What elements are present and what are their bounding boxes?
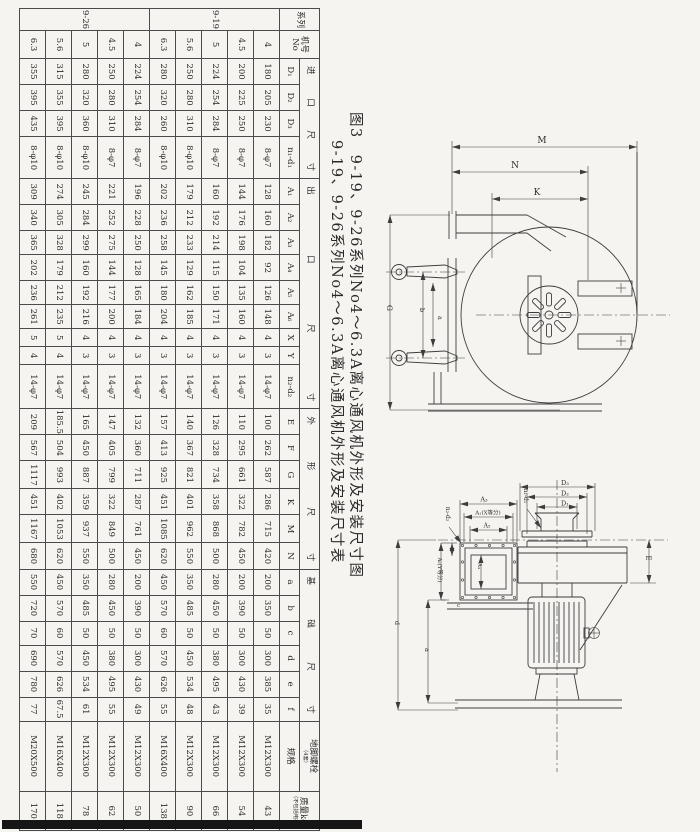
table-cell: 104 (228, 255, 254, 281)
table-cell: 50 (254, 621, 280, 645)
table-cell: 395 (20, 85, 46, 111)
column-group-header: 外形尺寸 (300, 409, 320, 569)
table-cell: 420 (254, 543, 280, 569)
table-cell: 570 (150, 595, 176, 621)
table-cell: 182 (254, 231, 280, 255)
table-cell: 8-φ7 (254, 137, 280, 179)
column-header: N (280, 543, 300, 569)
table-cell: 5 (20, 329, 46, 347)
table-cell: 4 (150, 329, 176, 347)
table-cell: 260 (150, 111, 176, 137)
table-cell: 1053 (46, 515, 72, 543)
table-cell: 4 (228, 329, 254, 347)
table-cell: 284 (124, 111, 150, 137)
table-cell: 198 (228, 231, 254, 255)
table-cell: 274 (46, 179, 72, 205)
table-cell: 322 (98, 489, 124, 515)
table-cell: 359 (72, 489, 98, 515)
table-cell: 450 (72, 435, 98, 461)
column-header: d (280, 645, 300, 671)
table-cell: 450 (228, 543, 254, 569)
table-cell: 320 (150, 85, 176, 111)
table-cell: 550 (176, 543, 202, 569)
table-cell: 430 (228, 671, 254, 697)
table-cell: 310 (98, 111, 124, 137)
table-cell: 365 (20, 231, 46, 255)
scan-edge-artifact (2, 820, 362, 829)
table-cell: 287 (124, 489, 150, 515)
column-header: K (280, 489, 300, 515)
table-cell: 185.5 (46, 409, 72, 435)
table-cell: 620 (150, 543, 176, 569)
table-cell: 49 (124, 697, 150, 721)
table-cell: 8-φ10 (72, 137, 98, 179)
table-cell: 450 (124, 543, 150, 569)
column-header: A₆ (280, 305, 300, 329)
table-cell: 165 (124, 281, 150, 305)
table-cell: 8-φ7 (202, 137, 228, 179)
table-cell: 245 (72, 179, 98, 205)
table-cell: 254 (124, 85, 150, 111)
table-cell: 132 (124, 409, 150, 435)
column-header: F (280, 435, 300, 461)
table-cell: 367 (176, 435, 202, 461)
table-cell: 5 (46, 329, 72, 347)
table-cell: 620 (46, 543, 72, 569)
table-cell: 184 (124, 305, 150, 329)
table-cell: M12X300 (228, 721, 254, 791)
table-cell: 180 (254, 59, 280, 85)
table-cell: 235 (46, 305, 72, 329)
table-cell: M16X400 (46, 721, 72, 791)
table-cell: 328 (202, 435, 228, 461)
table-cell: 720 (20, 595, 46, 621)
table-cell: 450 (150, 569, 176, 595)
table-cell: 162 (176, 281, 202, 305)
table-cell: 4 (254, 31, 280, 59)
table-cell: 450 (46, 569, 72, 595)
column-header: n₁-d₁ (280, 137, 300, 179)
table-cell: 295 (228, 435, 254, 461)
table-cell: 430 (124, 671, 150, 697)
table-cell: 50 (202, 621, 228, 645)
column-group-header: 地脚螺栓（4套） (300, 721, 320, 791)
table-cell: 70 (20, 621, 46, 645)
table-cell: 14-φ7 (228, 365, 254, 409)
table-cell: 60 (150, 621, 176, 645)
table-cell: 887 (72, 461, 98, 489)
table-cell: 284 (72, 205, 98, 231)
table-cell: 92 (254, 255, 280, 281)
table-cell: 451 (150, 489, 176, 515)
table-cell: 570 (150, 645, 176, 671)
table-cell: 14-φ7 (72, 365, 98, 409)
table-cell: 284 (202, 111, 228, 137)
table-cell: 250 (98, 59, 124, 85)
table-cell: M16X400 (150, 721, 176, 791)
table-cell: 450 (72, 645, 98, 671)
table-cell: 390 (124, 595, 150, 621)
series-cell: 9-26 (20, 9, 150, 31)
table-cell: 5 (72, 31, 98, 59)
table-cell: 212 (46, 281, 72, 305)
table-cell: 67.5 (46, 697, 72, 721)
table-cell: 144 (98, 255, 124, 281)
column-header: 规格 (280, 721, 300, 791)
table-cell: 160 (228, 305, 254, 329)
table-cell: 5 (202, 31, 228, 59)
table-cell: 160 (202, 179, 228, 205)
table-cell: 925 (150, 461, 176, 489)
table-cell: 570 (46, 595, 72, 621)
table-cell: 192 (72, 281, 98, 305)
table-cell: 50 (176, 621, 202, 645)
table-cell: 451 (20, 489, 46, 515)
table-cell: 993 (46, 461, 72, 489)
table-cell: 360 (72, 111, 98, 137)
table-cell: 128 (254, 179, 280, 205)
table-cell: 299 (72, 231, 98, 255)
table-cell: 3 (202, 347, 228, 365)
table-cell: 144 (228, 179, 254, 205)
table-cell: 233 (176, 231, 202, 255)
table-cell: 262 (254, 435, 280, 461)
table-cell: 8-φ7 (228, 137, 254, 179)
table-cell: M12X300 (72, 721, 98, 791)
column-header: A₅ (280, 281, 300, 305)
table-cell: 50 (98, 621, 124, 645)
table-cell: 500 (202, 543, 228, 569)
table-cell: 450 (98, 595, 124, 621)
table-cell: 849 (98, 515, 124, 543)
column-header: X (280, 329, 300, 347)
column-header: A₄ (280, 255, 300, 281)
table-cell: 202 (150, 179, 176, 205)
table-cell: 3 (72, 347, 98, 365)
table-cell: 4.5 (98, 31, 124, 59)
table-cell: 305 (46, 205, 72, 231)
table-cell: 300 (228, 645, 254, 671)
table-cell: 200 (228, 59, 254, 85)
table-cell: 185 (176, 305, 202, 329)
table-cell: M20X500 (20, 721, 46, 791)
table-cell: 214 (202, 231, 228, 255)
table-row: 6.32803202608-φ102022362581451802044314-… (150, 9, 176, 831)
table-cell: 8-φ7 (98, 137, 124, 179)
table-cell: M12X300 (176, 721, 202, 791)
table-row: 52803203608-φ102452842991601922164314-φ7… (72, 9, 98, 831)
rotated-sheet: 图3 9-19、9-26系列No4～6.3A离心通风机外形及安装尺寸图 9-19… (0, 0, 700, 832)
table-cell: M12X300 (98, 721, 124, 791)
table-cell: 100 (254, 409, 280, 435)
table-cell: 413 (150, 435, 176, 461)
table-cell: 350 (176, 569, 202, 595)
column-header: D₃ (280, 111, 300, 137)
table-cell: 165 (72, 409, 98, 435)
table-cell: 360 (124, 435, 150, 461)
table-cell: 250 (124, 231, 150, 255)
table-cell: 160 (254, 205, 280, 231)
table-cell: 320 (72, 85, 98, 111)
table-cell: 6.3 (150, 31, 176, 59)
table-cell: 4 (46, 347, 72, 365)
table-cell: 1117 (20, 461, 46, 489)
table-cell: 286 (254, 489, 280, 515)
table-cell: 6.3 (20, 31, 46, 59)
table-cell: 4 (176, 329, 202, 347)
table-cell: 534 (176, 671, 202, 697)
table-cell: 150 (202, 281, 228, 305)
table-cell: 402 (46, 489, 72, 515)
table-cell: 14-φ7 (254, 365, 280, 409)
table-cell: 5.6 (176, 31, 202, 59)
table-cell: 395 (46, 111, 72, 137)
table-cell: M12X300 (202, 721, 228, 791)
column-header: D₁ (280, 59, 300, 85)
scanned-page: 图3 9-19、9-26系列No4～6.3A离心通风机外形及安装尺寸图 9-19… (0, 0, 700, 832)
table-cell: 145 (150, 255, 176, 281)
table-cell: 55 (98, 697, 124, 721)
table-cell: 171 (202, 305, 228, 329)
table-cell: 200 (254, 569, 280, 595)
table-cell: 236 (150, 205, 176, 231)
table-cell: 200 (98, 305, 124, 329)
table-cell: 782 (228, 515, 254, 543)
column-header: b (280, 595, 300, 621)
table-row: 5.62502803108-φ101792122331291621854314-… (176, 9, 202, 831)
table-cell: 1085 (150, 515, 176, 543)
table-cell: 280 (98, 85, 124, 111)
table-cell: 48 (176, 697, 202, 721)
table-cell: 715 (254, 515, 280, 543)
table-cell: 77 (20, 697, 46, 721)
table-cell: 680 (20, 543, 46, 569)
column-group-header: 出口尺寸 (300, 179, 320, 409)
table-cell: 570 (46, 645, 72, 671)
table-cell: 35 (254, 697, 280, 721)
table-cell: 626 (46, 671, 72, 697)
table-cell: 734 (202, 461, 228, 489)
table-cell: 3 (150, 347, 176, 365)
column-header: A₁ (280, 179, 300, 205)
table-cell: 485 (72, 595, 98, 621)
table-cell: 3 (228, 347, 254, 365)
column-group-header: 系列 (280, 9, 320, 31)
table-row: 4.52502803108-φ72212522751441772004314-φ… (98, 9, 124, 831)
table-row: 52242542848-φ71601922141151501714314-φ71… (202, 9, 228, 831)
table-cell: 50 (72, 621, 98, 645)
column-header: c (280, 621, 300, 645)
table-cell: 661 (228, 461, 254, 489)
table-cell: 196 (124, 179, 150, 205)
table-cell: 61 (72, 697, 98, 721)
table-cell: 126 (254, 281, 280, 305)
column-header: f (280, 697, 300, 721)
table-cell: 780 (20, 671, 46, 697)
table-cell: 280 (202, 569, 228, 595)
column-group-header: 进口尺寸 (300, 59, 320, 179)
table-cell: 14-φ7 (176, 365, 202, 409)
column-group-header: 机号 No (280, 31, 320, 59)
column-header: n₂-d₂ (280, 365, 300, 409)
table-cell: 280 (98, 569, 124, 595)
table-cell: 258 (150, 231, 176, 255)
table-cell: 821 (176, 461, 202, 489)
table-cell: 405 (98, 435, 124, 461)
table-cell: 39 (228, 697, 254, 721)
table-cell: 280 (150, 59, 176, 85)
table-cell: 160 (72, 255, 98, 281)
column-header: A₂ (280, 205, 300, 231)
table-cell: 3 (176, 347, 202, 365)
table-cell: 550 (20, 569, 46, 595)
table-cell: 280 (176, 85, 202, 111)
table-cell: 350 (72, 569, 98, 595)
table-cell: 275 (98, 231, 124, 255)
table-cell: 140 (176, 409, 202, 435)
table-cell: 4 (124, 31, 150, 59)
table-cell: 322 (228, 489, 254, 515)
table-cell: 450 (202, 595, 228, 621)
table-cell: 3 (124, 347, 150, 365)
table-cell: 5.6 (46, 31, 72, 59)
table-cell: 4 (20, 347, 46, 365)
table-cell: 350 (254, 595, 280, 621)
table-cell: 252 (98, 205, 124, 231)
table-cell: 962 (176, 515, 202, 543)
table-row: 5.63153553958-φ102743053281792122355414-… (46, 9, 72, 831)
table-cell: 250 (228, 111, 254, 137)
table-cell: 209 (20, 409, 46, 435)
table-cell: 534 (72, 671, 98, 697)
table-cell: 8-φ7 (124, 137, 150, 179)
table-cell: 50 (124, 621, 150, 645)
table-cell: 401 (176, 489, 202, 515)
table-cell: 485 (176, 595, 202, 621)
table-cell: 390 (228, 595, 254, 621)
figure-title: 图3 9-19、9-26系列No4～6.3A离心通风机外形及安装尺寸图 (346, 112, 367, 579)
table-cell: 204 (150, 305, 176, 329)
table-cell: 315 (46, 59, 72, 85)
table-cell: 587 (254, 461, 280, 489)
table-cell: 135 (228, 281, 254, 305)
table-cell: 250 (176, 59, 202, 85)
table-cell: 14-φ7 (46, 365, 72, 409)
table-cell: 495 (98, 671, 124, 697)
table-cell: 128 (124, 255, 150, 281)
table-cell: 202 (20, 255, 46, 281)
table-cell: 43 (202, 697, 228, 721)
column-header: M (280, 515, 300, 543)
table-row: 9-1941802052308-φ7128160182921261484314-… (254, 9, 280, 831)
table-cell: 937 (72, 515, 98, 543)
table-cell: 309 (20, 179, 46, 205)
table-cell: 711 (124, 461, 150, 489)
table-cell: 450 (176, 645, 202, 671)
table-cell: 200 (228, 569, 254, 595)
column-header: E (280, 409, 300, 435)
table-cell: 8-φ10 (20, 137, 46, 179)
table-cell: 799 (98, 461, 124, 489)
table-cell: 228 (124, 205, 150, 231)
table-cell: 14-φ7 (98, 365, 124, 409)
table-cell: 385 (254, 671, 280, 697)
table-cell: 157 (150, 409, 176, 435)
table-cell: 300 (254, 645, 280, 671)
table-cell: 212 (176, 205, 202, 231)
table-row: 4.52002252508-φ71441761981041351604314-φ… (228, 9, 254, 831)
table-cell: 355 (20, 59, 46, 85)
table-cell: 8-φ10 (176, 137, 202, 179)
table-cell: 126 (202, 409, 228, 435)
table-cell: 254 (202, 85, 228, 111)
table-cell: 261 (20, 305, 46, 329)
table-cell: 1167 (20, 515, 46, 543)
table-cell: 179 (46, 255, 72, 281)
table-cell: 236 (20, 281, 46, 305)
table-cell: 129 (176, 255, 202, 281)
table-cell: 761 (124, 515, 150, 543)
column-header: G (280, 461, 300, 489)
table-cell: 200 (124, 569, 150, 595)
table-cell: 60 (46, 621, 72, 645)
table-cell: 14-φ7 (20, 365, 46, 409)
table-cell: 3 (98, 347, 124, 365)
table-cell: 230 (254, 111, 280, 137)
table-cell: 205 (254, 85, 280, 111)
column-header: A₃ (280, 231, 300, 255)
column-header: e (280, 671, 300, 697)
table-cell: M12X300 (124, 721, 150, 791)
table-cell: 626 (150, 671, 176, 697)
table-cell: 14-φ7 (124, 365, 150, 409)
table-cell: 495 (202, 671, 228, 697)
table-cell: 225 (228, 85, 254, 111)
table-cell: 4 (202, 329, 228, 347)
table-cell: 192 (202, 205, 228, 231)
table-cell: 380 (98, 645, 124, 671)
column-group-header: 基础尺寸 (300, 569, 320, 721)
table-title: 9-19、9-26系列No4～6.3A离心通风机外形及安装尺寸表 (327, 140, 348, 564)
table-cell: 8-φ10 (150, 137, 176, 179)
table-cell: 4.5 (228, 31, 254, 59)
table-cell: 176 (228, 205, 254, 231)
column-header: a (280, 569, 300, 595)
table-cell: 216 (72, 305, 98, 329)
table-cell: 435 (20, 111, 46, 137)
table-cell: 8-φ10 (46, 137, 72, 179)
table-cell: 4 (124, 329, 150, 347)
table-cell: 180 (150, 281, 176, 305)
table-cell: 14-φ7 (150, 365, 176, 409)
table-cell: 868 (202, 515, 228, 543)
dimension-table: 系列机号 No进口尺寸出口尺寸外形尺寸基础尺寸地脚螺栓（4套）质量kg（不包括电… (19, 8, 320, 831)
table-cell: 550 (72, 543, 98, 569)
series-cell: 9-19 (150, 9, 280, 31)
table-cell: 500 (98, 543, 124, 569)
table-cell: 14-φ7 (202, 365, 228, 409)
table-cell: 4 (254, 329, 280, 347)
table-cell: 380 (202, 645, 228, 671)
table-cell: 504 (46, 435, 72, 461)
table-cell: 115 (202, 255, 228, 281)
column-header: Y (280, 347, 300, 365)
table-cell: 147 (98, 409, 124, 435)
table-cell: 148 (254, 305, 280, 329)
table-cell: 55 (150, 697, 176, 721)
table-cell: 221 (98, 179, 124, 205)
table-cell: 224 (202, 59, 228, 85)
